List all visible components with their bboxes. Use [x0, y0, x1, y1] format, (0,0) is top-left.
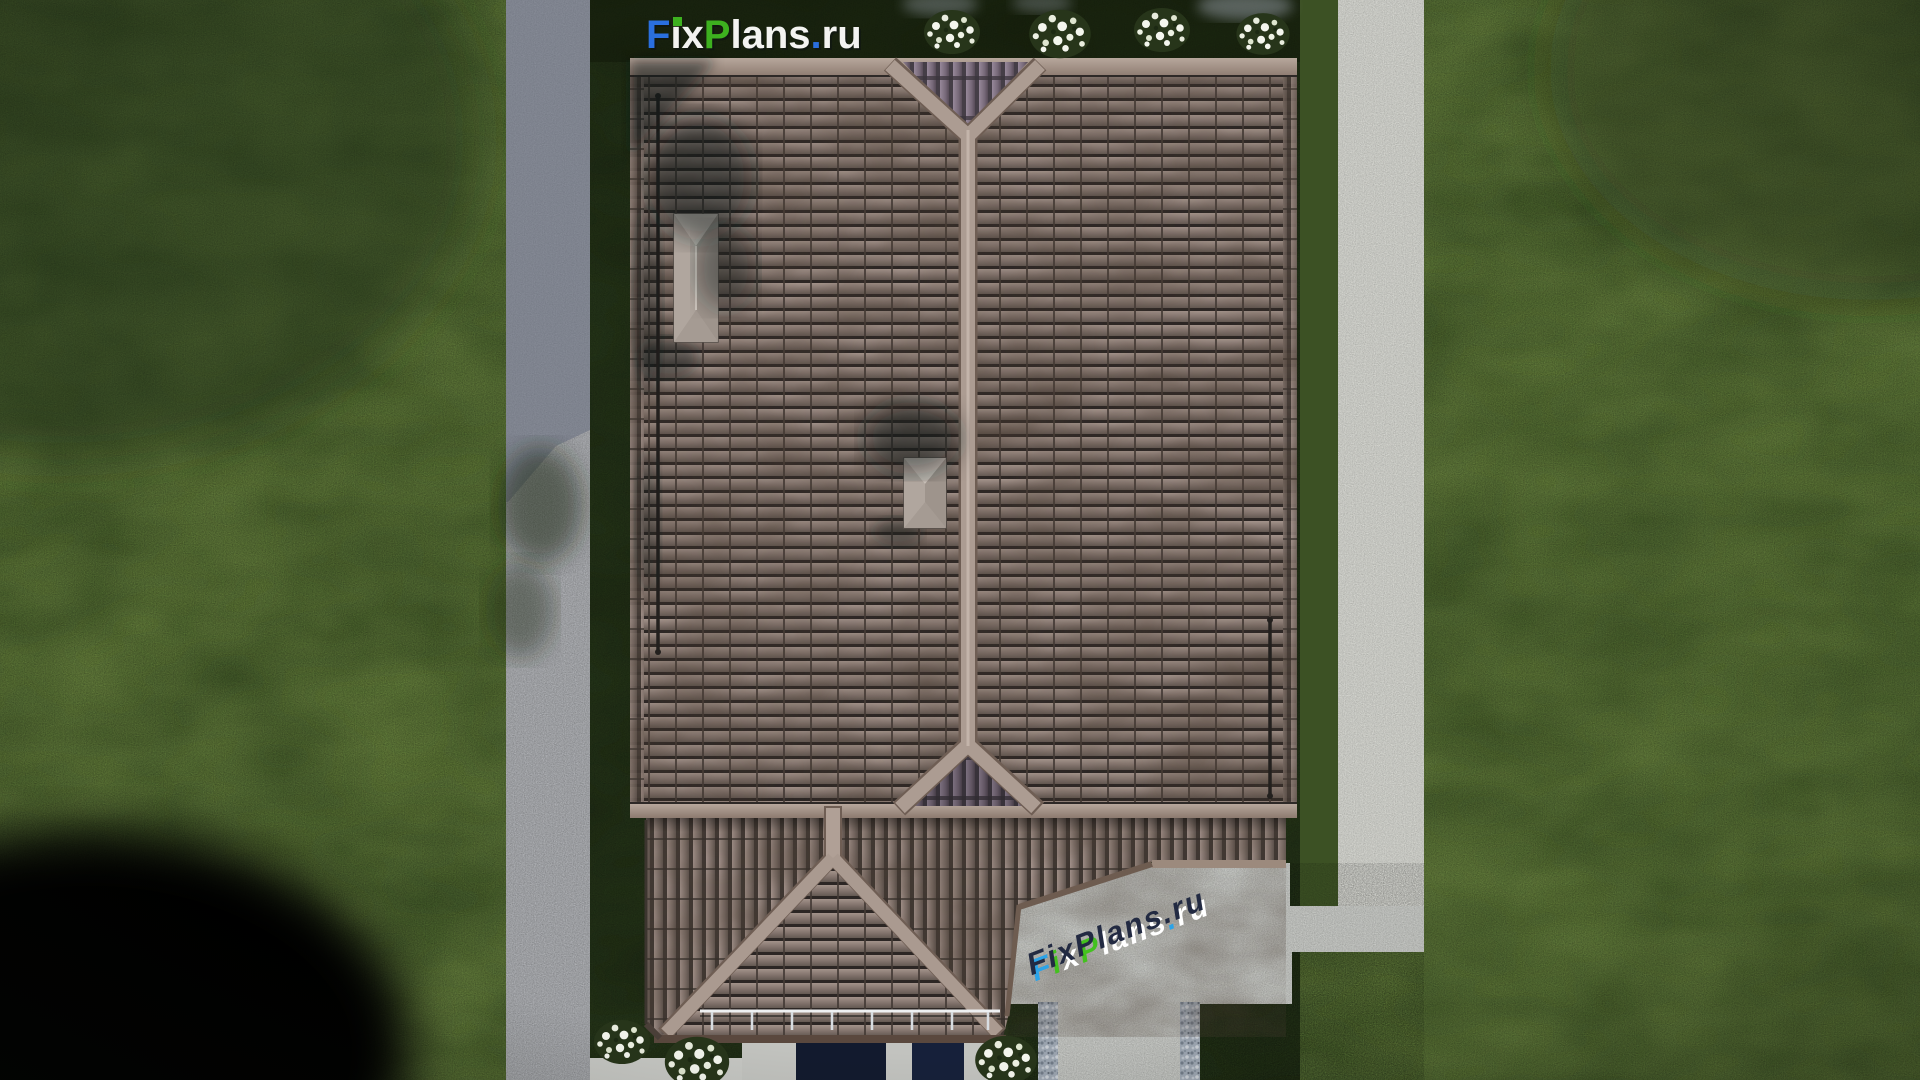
vignette: [0, 0, 1920, 1080]
aerial-house-render: FixPlans.ru FixPlans.ru FixPlans.ru FixP…: [0, 0, 1920, 1080]
